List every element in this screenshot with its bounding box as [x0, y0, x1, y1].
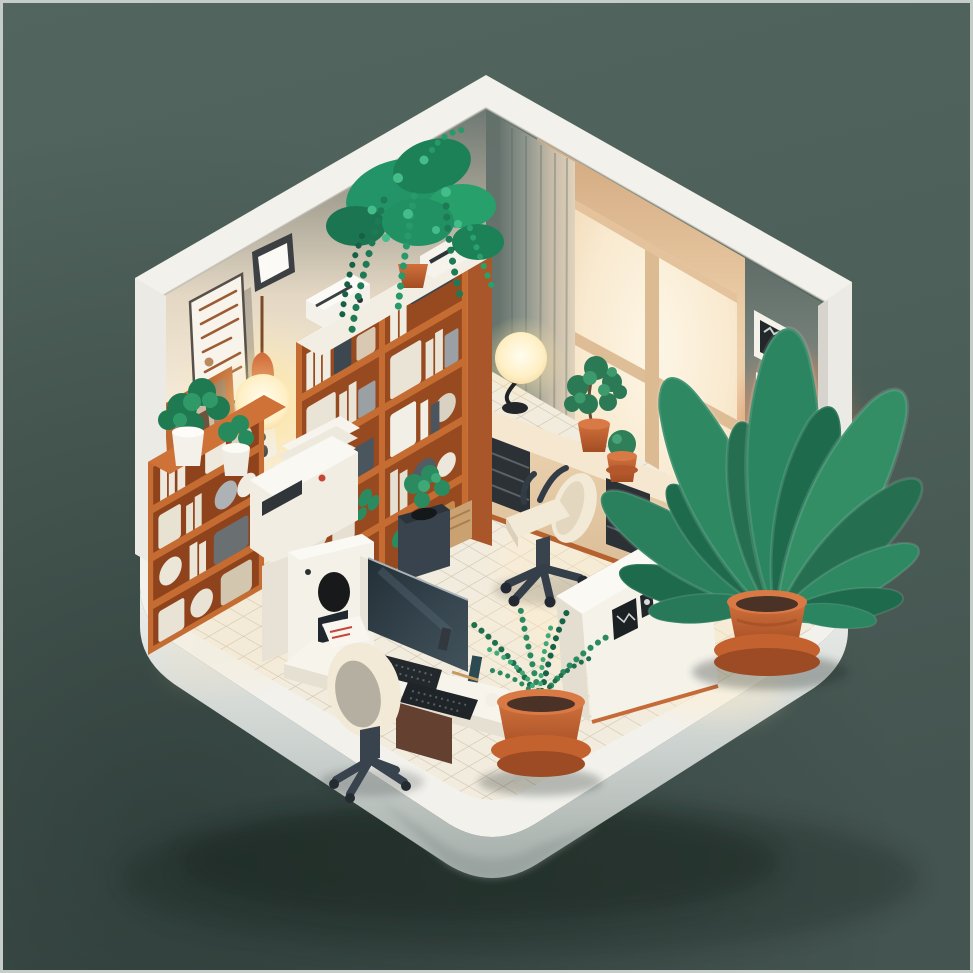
certificate-seal [205, 358, 214, 367]
copier-led [319, 475, 326, 482]
pc-speaker-oval [318, 572, 350, 612]
big-pot-soil [736, 596, 798, 612]
window-mullion-vertical [645, 241, 659, 501]
pc-button [305, 569, 311, 575]
pc-cabinet-left-box [262, 556, 290, 662]
credenza-lamp-shade [495, 332, 547, 384]
credenza-plant-succulent [606, 430, 638, 482]
isometric-office-illustration: Cozy isometric home office room diorama … [0, 0, 973, 973]
credenza-lamp-base [502, 402, 528, 414]
foreground-plant-pot [491, 689, 591, 777]
picture-2-mark [644, 599, 650, 605]
illustration-stage: Cozy isometric home office room diorama … [0, 0, 973, 973]
fg-pot-base [497, 751, 585, 777]
desk-mug [485, 693, 499, 707]
big-pot-saucer-base [714, 648, 820, 676]
bookshelf-divider [379, 297, 385, 586]
fg-pot-soil [507, 696, 575, 712]
